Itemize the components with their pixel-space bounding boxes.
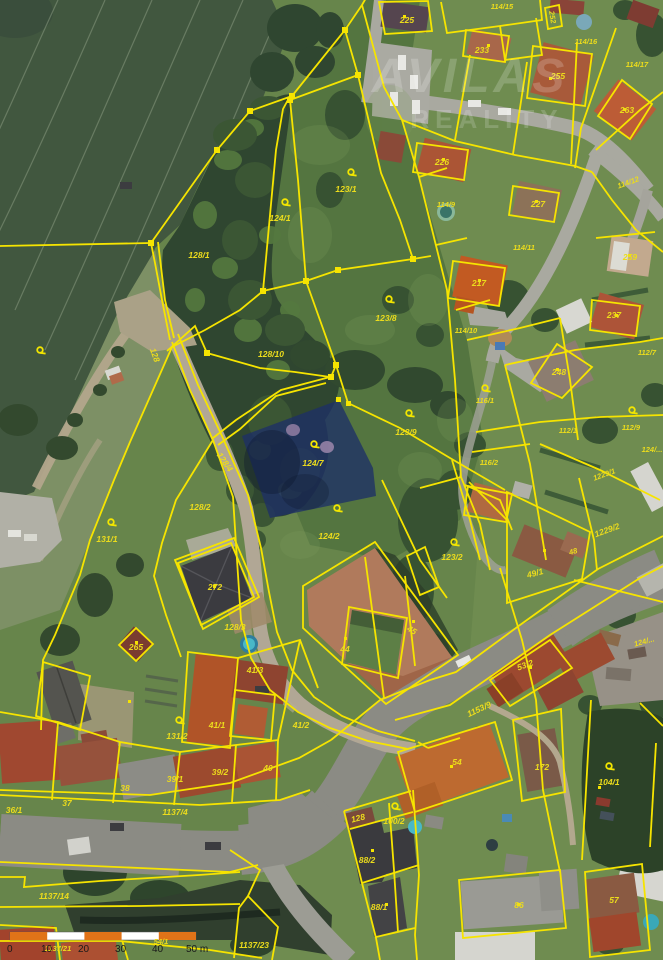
svg-text:100/2: 100/2 xyxy=(383,816,405,826)
svg-text:57: 57 xyxy=(609,895,620,905)
svg-text:41/1: 41/1 xyxy=(208,720,226,730)
svg-text:124/7: 124/7 xyxy=(302,458,325,468)
svg-text:131/2: 131/2 xyxy=(166,731,188,741)
svg-text:41/3: 41/3 xyxy=(246,665,264,675)
svg-text:44: 44 xyxy=(339,644,350,654)
svg-text:54/1: 54/1 xyxy=(154,937,169,946)
svg-text:123/9: 123/9 xyxy=(395,427,417,437)
svg-text:1137/4: 1137/4 xyxy=(162,807,188,817)
svg-text:50 m: 50 m xyxy=(186,944,208,955)
svg-text:123/8: 123/8 xyxy=(375,313,397,323)
svg-text:114/9: 114/9 xyxy=(437,200,456,209)
svg-text:0: 0 xyxy=(7,944,13,955)
svg-text:116/1: 116/1 xyxy=(476,396,494,405)
svg-text:263: 263 xyxy=(619,105,634,115)
svg-text:10: 10 xyxy=(41,944,53,955)
svg-text:116/2: 116/2 xyxy=(480,458,499,467)
svg-text:1137/14: 1137/14 xyxy=(39,891,69,901)
svg-text:272: 272 xyxy=(207,582,222,592)
svg-text:248: 248 xyxy=(551,367,566,377)
svg-text:259: 259 xyxy=(622,252,637,262)
svg-text:112/9: 112/9 xyxy=(622,423,641,432)
svg-text:217: 217 xyxy=(471,278,487,288)
svg-text:225: 225 xyxy=(399,15,414,25)
svg-text:128/10: 128/10 xyxy=(258,349,284,359)
svg-text:172: 172 xyxy=(535,762,549,772)
svg-text:114/10: 114/10 xyxy=(455,326,478,335)
svg-text:20: 20 xyxy=(78,944,90,955)
svg-text:226: 226 xyxy=(434,157,449,167)
svg-text:37: 37 xyxy=(62,798,73,808)
svg-text:112/7: 112/7 xyxy=(638,348,657,357)
svg-text:39/2: 39/2 xyxy=(212,767,229,777)
svg-text:124/2: 124/2 xyxy=(318,531,340,541)
svg-text:86: 86 xyxy=(514,900,524,910)
svg-text:128/1: 128/1 xyxy=(188,250,210,260)
svg-text:227: 227 xyxy=(530,199,546,209)
svg-text:40: 40 xyxy=(262,763,273,773)
svg-text:114/16: 114/16 xyxy=(575,37,598,46)
svg-text:114/15: 114/15 xyxy=(491,2,514,11)
svg-text:114/17: 114/17 xyxy=(626,60,649,69)
svg-text:41/2: 41/2 xyxy=(292,720,310,730)
svg-text:54: 54 xyxy=(452,757,462,767)
svg-text:123/1: 123/1 xyxy=(335,184,357,194)
svg-text:112/1: 112/1 xyxy=(559,426,577,435)
svg-text:104/1: 104/1 xyxy=(598,777,620,787)
svg-text:124/1: 124/1 xyxy=(269,213,291,223)
svg-text:123/2: 123/2 xyxy=(441,552,463,562)
svg-text:REALITY: REALITY xyxy=(410,104,563,134)
svg-text:1137/23: 1137/23 xyxy=(239,940,269,950)
svg-text:88/2: 88/2 xyxy=(359,855,376,865)
svg-text:124/...: 124/... xyxy=(642,445,663,454)
svg-text:128/3: 128/3 xyxy=(224,622,246,632)
svg-text:237: 237 xyxy=(606,310,622,320)
svg-text:AVILAS: AVILAS xyxy=(371,50,568,103)
svg-text:39/1: 39/1 xyxy=(167,774,184,784)
svg-text:88/1: 88/1 xyxy=(371,902,388,912)
svg-text:114/11: 114/11 xyxy=(513,243,535,252)
svg-text:36/1: 36/1 xyxy=(6,805,23,815)
svg-text:265: 265 xyxy=(128,642,143,652)
svg-text:38: 38 xyxy=(120,783,130,793)
svg-text:128/2: 128/2 xyxy=(189,502,211,512)
svg-text:131/1: 131/1 xyxy=(96,534,118,544)
svg-text:30: 30 xyxy=(115,944,127,955)
